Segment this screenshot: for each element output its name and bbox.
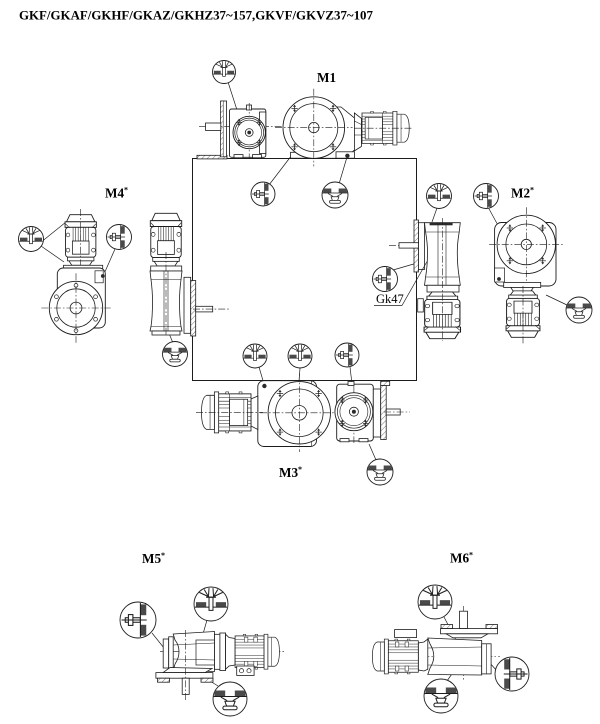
svg-text:M1: M1 xyxy=(317,70,336,85)
svg-text:Gk47: Gk47 xyxy=(376,292,404,306)
svg-text:GKF/GKAF/GKHF/GKAZ/GKHZ37~157,: GKF/GKAF/GKHF/GKAZ/GKHZ37~157,GKVF/GKVZ3… xyxy=(19,9,373,23)
